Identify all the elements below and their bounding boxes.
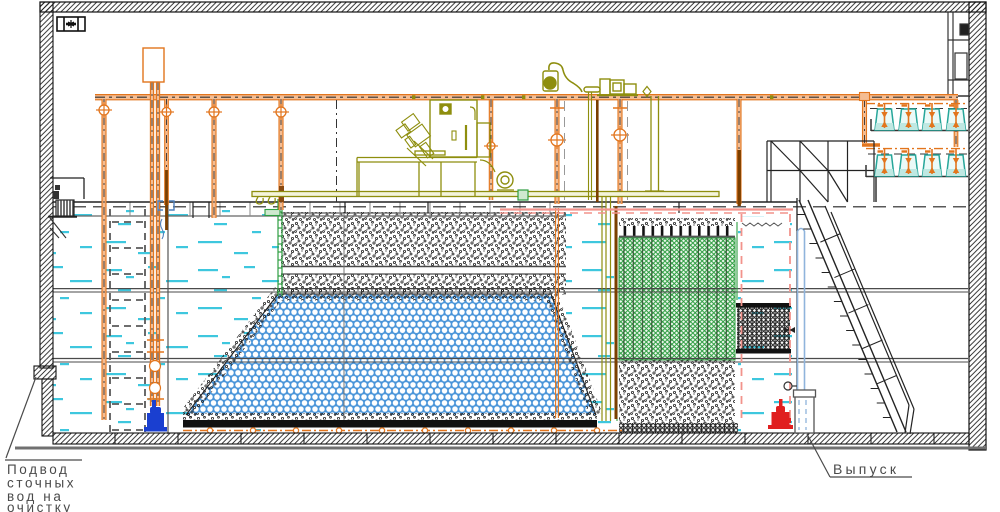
- svg-text:очистку: очистку: [7, 500, 73, 512]
- svg-text:Выпуск: Выпуск: [833, 461, 899, 477]
